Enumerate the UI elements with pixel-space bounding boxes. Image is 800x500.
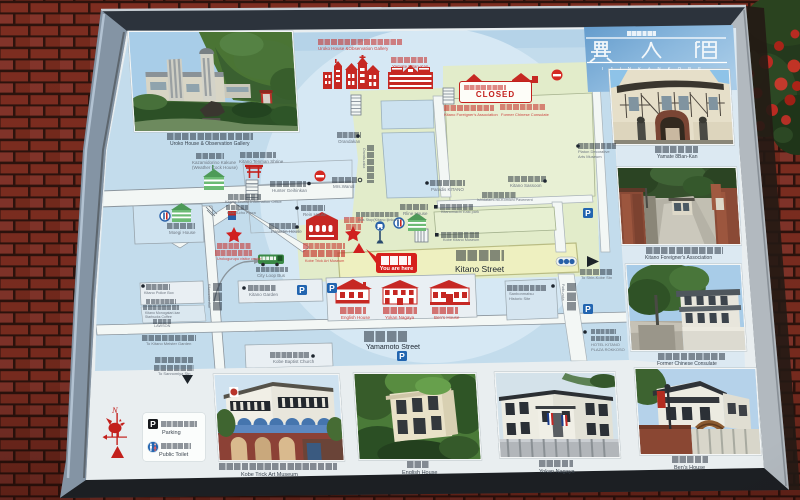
svg-text:P: P <box>585 304 591 314</box>
svg-text:P: P <box>399 351 405 361</box>
svg-text:P: P <box>299 285 305 295</box>
svg-text:I J I N K A N K O B E: I J I N K A N K O B E <box>602 66 704 71</box>
svg-text:P: P <box>329 283 335 293</box>
svg-text:P: P <box>585 208 591 218</box>
